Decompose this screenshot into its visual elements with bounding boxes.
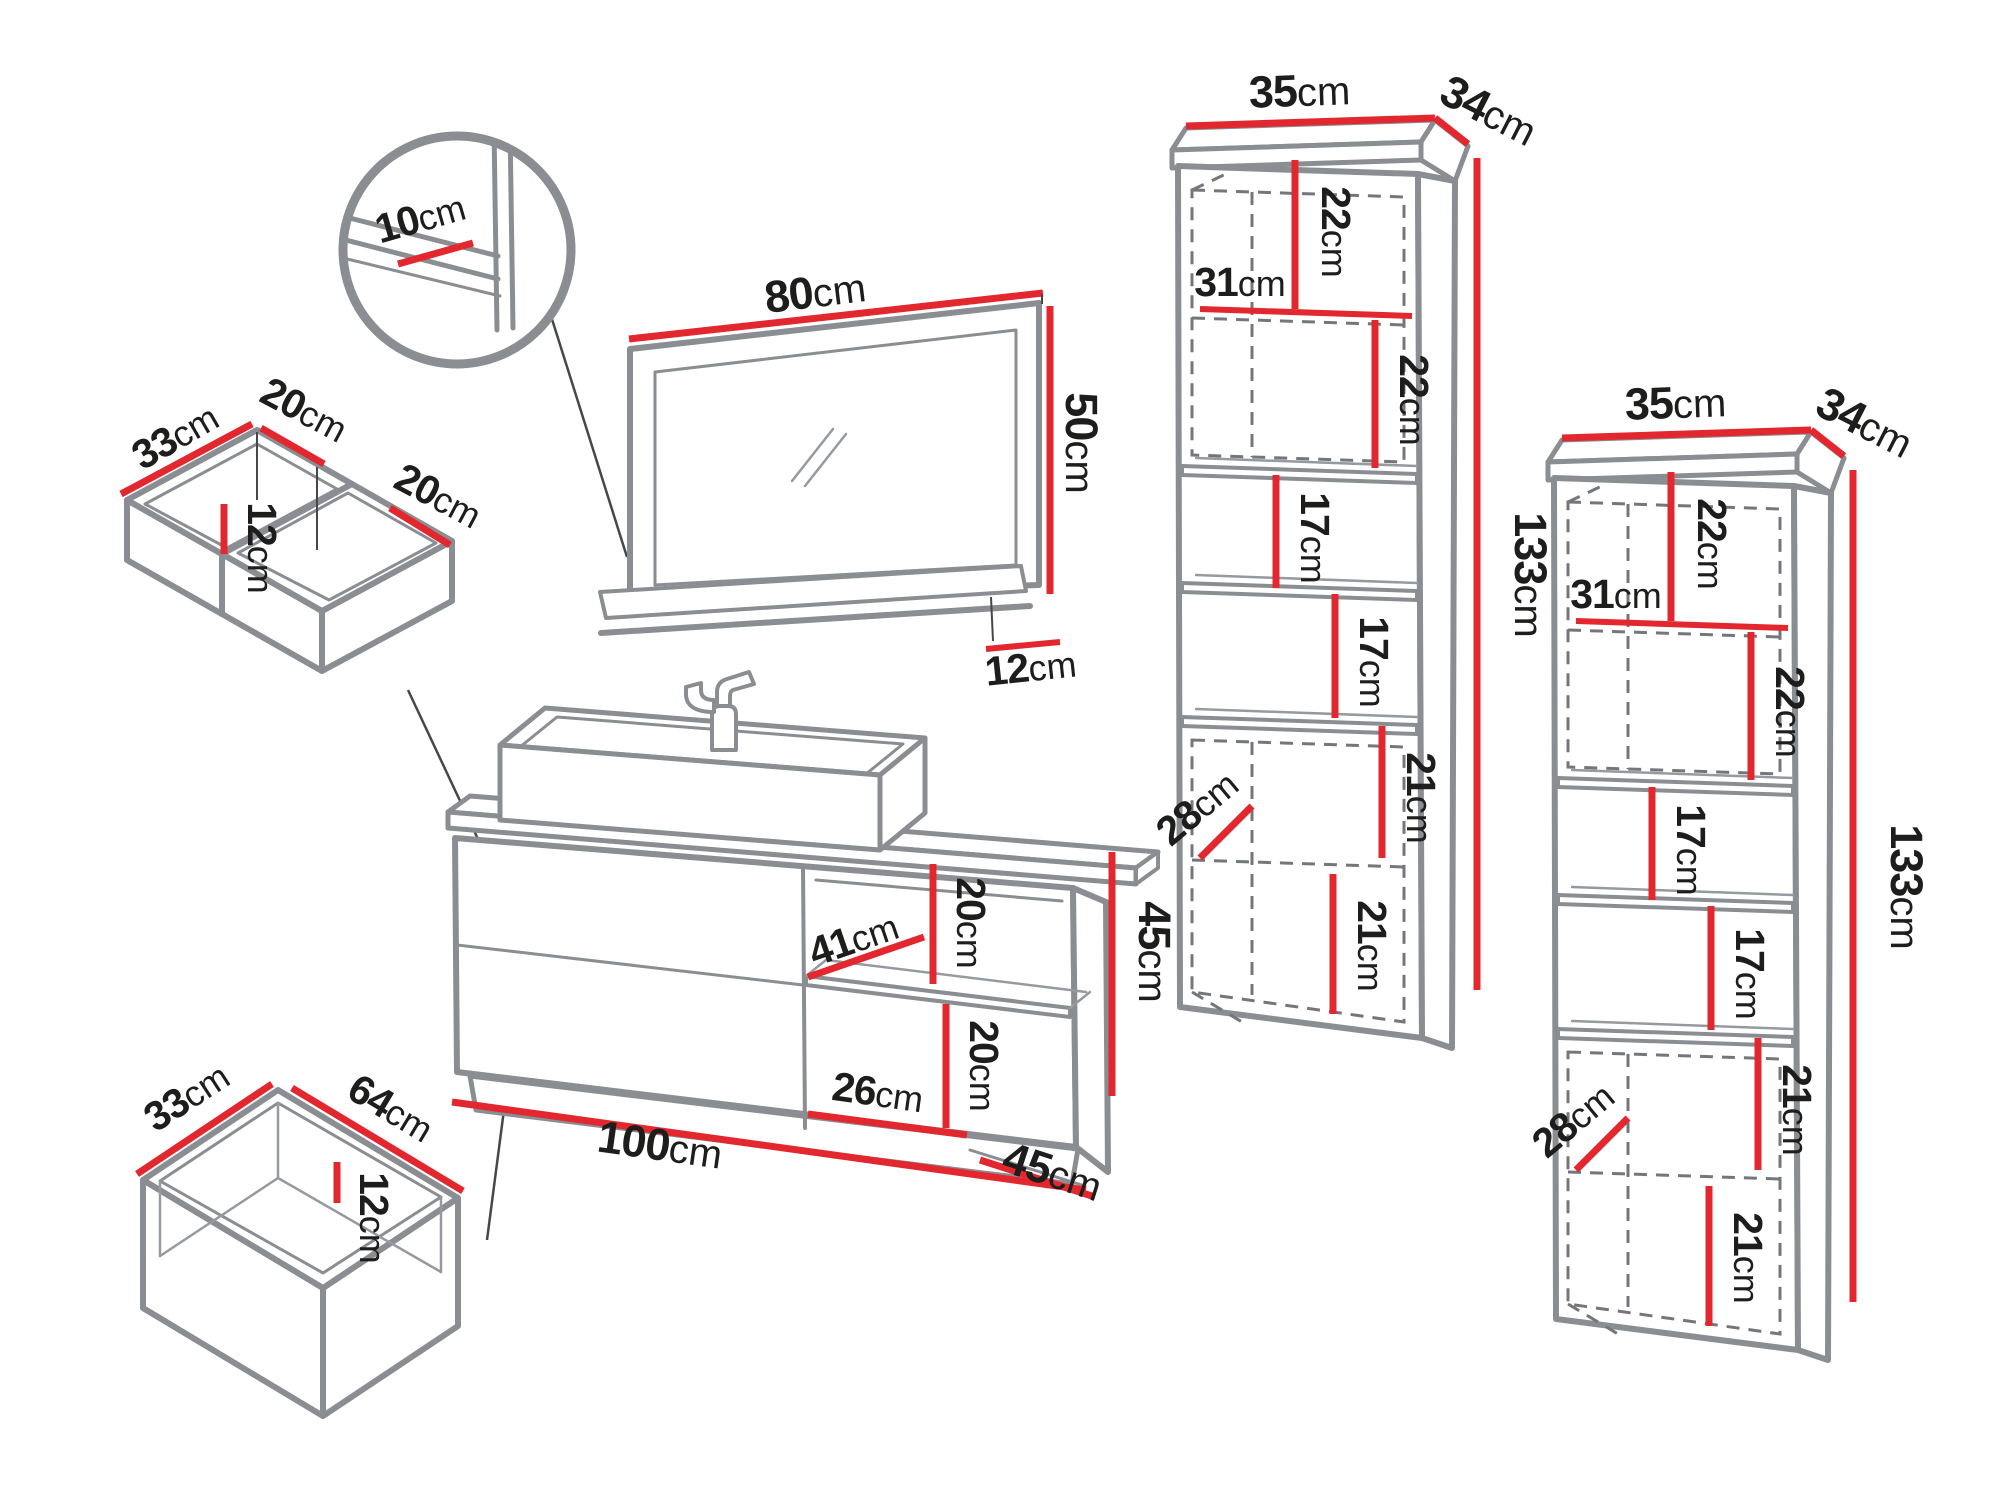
lower-drawer-inner-height-label: 12cm xyxy=(351,1172,397,1264)
diagram-canvas: 10cm 80cm 50cm 12cm xyxy=(0,0,2000,1500)
tall-cabinet-right xyxy=(1523,375,1932,1360)
vanity-upper-niche-label: 20cm xyxy=(948,877,994,969)
cabinet-inner-width-label: 31cm xyxy=(1194,259,1286,305)
cabinet-niche4-label: 17cm xyxy=(1351,616,1397,708)
leader-detail-to-mirror xyxy=(551,316,627,557)
vanity-lower-niche-label: 20cm xyxy=(961,1020,1007,1112)
faucet-handle xyxy=(717,672,754,706)
upper-drawer-inner-height-label: 12cm xyxy=(239,502,285,594)
cabinet-niche6-label: 21cm xyxy=(1349,900,1395,992)
cabinet-niche1-label: 22cm xyxy=(1313,186,1359,278)
cabinet-niche2-label: 22cm xyxy=(1391,354,1437,446)
vanity-divider xyxy=(803,866,805,1128)
mirror-shelf-depth-label: 12cm xyxy=(983,639,1079,694)
vanity-height-label: 45cm xyxy=(1129,901,1180,1002)
bathroom-furniture-dimension-diagram: 10cm 80cm 50cm 12cm xyxy=(0,0,2000,1500)
cabinet-height-label: 133cm xyxy=(1505,512,1556,637)
vanity-body-side xyxy=(1073,888,1108,1172)
cabinet-niche5-label: 21cm xyxy=(1398,752,1444,844)
cabinet-top-width-label: 35cm xyxy=(1248,63,1351,118)
detail-circle-view: 10cm xyxy=(330,126,571,364)
lower-drawer-detail: 33cm 64cm 12cm xyxy=(135,1052,463,1416)
vanity-unit: 41cm 20cm 20cm 26cm 45cm 100cm 45cm xyxy=(448,672,1180,1211)
mirror: 80cm 50cm 12cm xyxy=(600,260,1107,695)
cabinet-body-side xyxy=(1418,174,1455,1048)
faucet-spout xyxy=(686,683,714,712)
mirror-height-label: 50cm xyxy=(1056,392,1107,493)
tall-cabinet-left: 35cm 34cm 22cm 31cm 22cm 17cm 17cm 21cm … xyxy=(1147,63,1556,1048)
upper-drawer-detail: 33cm 20cm 12cm 20cm xyxy=(121,368,490,671)
cabinet-niche3-label: 17cm xyxy=(1292,492,1338,584)
